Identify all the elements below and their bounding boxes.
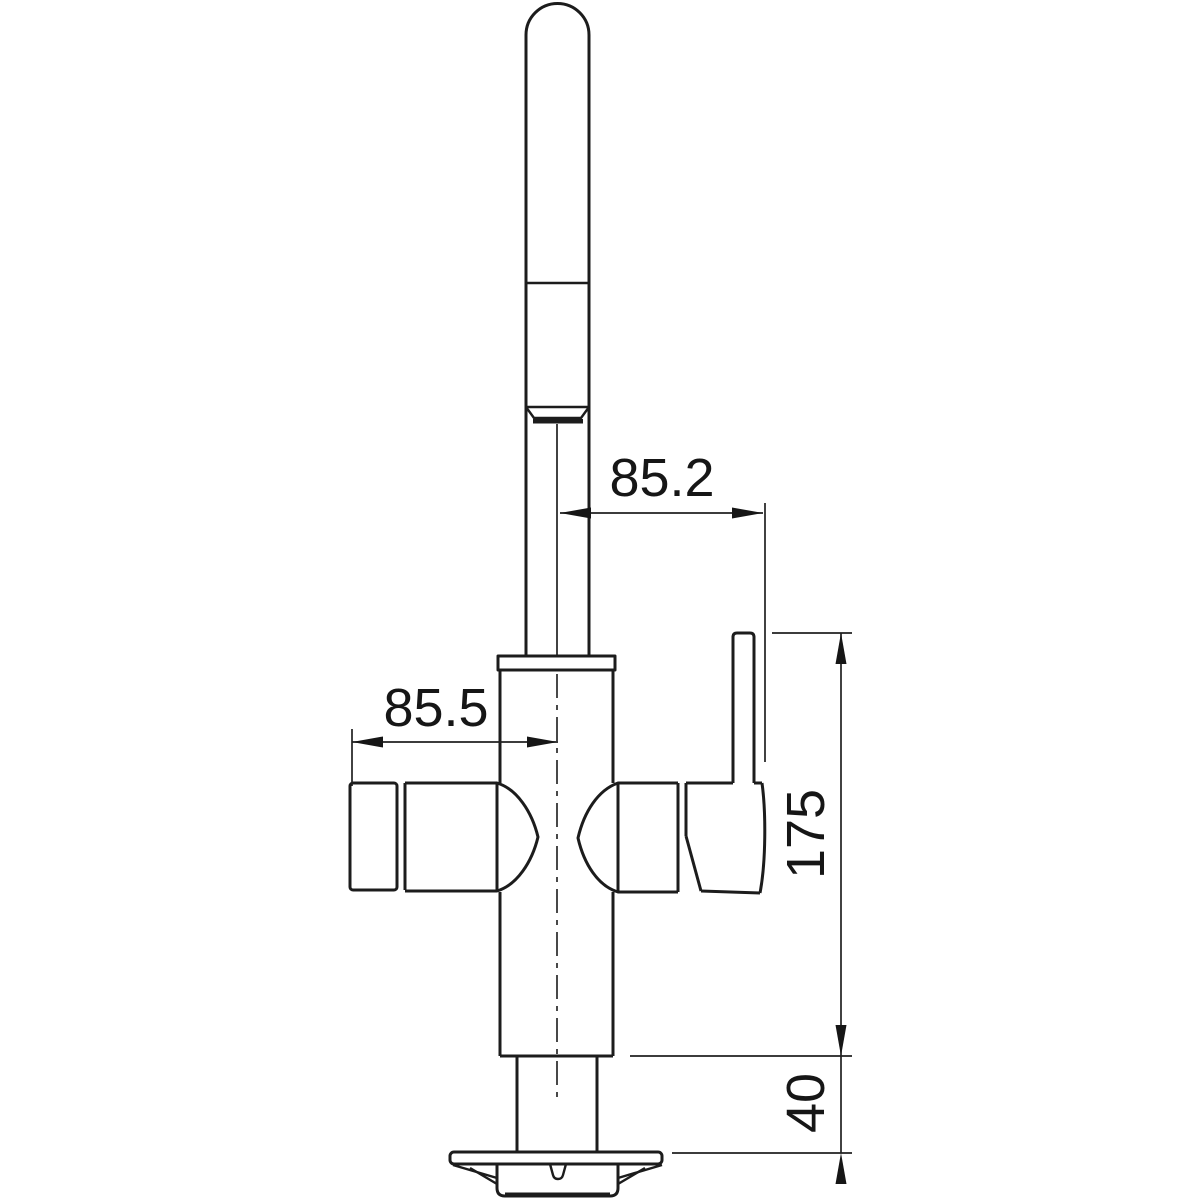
handle-body-bottom — [701, 891, 760, 893]
left-valve — [350, 783, 538, 891]
right-barrel-nose — [578, 783, 618, 892]
left-valve-nose — [497, 783, 538, 891]
body-collar — [498, 656, 615, 670]
dimension-40: 40 — [630, 1056, 852, 1184]
dimension-40-label: 40 — [776, 1073, 836, 1133]
base-mount — [450, 1056, 662, 1196]
base-flange-plate — [450, 1152, 662, 1164]
dimension-85-2-arrow-right — [732, 508, 763, 519]
aerator-chamfer — [526, 407, 589, 418]
dimension-85-5-label: 85.5 — [383, 678, 488, 738]
aerator-ring — [533, 419, 583, 424]
dimension-175: 175 — [772, 633, 852, 1056]
dimension-175-label: 175 — [776, 789, 836, 879]
dimension-85-2-label: 85.2 — [609, 448, 714, 508]
base-box-bottom-thick-edge — [505, 1193, 610, 1197]
handle-pivot-diagonal — [686, 836, 701, 891]
drawing-canvas: 85.2 85.5 175 40 — [0, 0, 1200, 1200]
right-handle-assembly — [578, 633, 765, 893]
left-valve-end-cap — [350, 783, 397, 890]
handle-body-right-edge — [760, 783, 765, 893]
dimension-85-5-arrow-right — [527, 737, 558, 748]
dimension-85-2-arrow-left — [560, 508, 591, 519]
faucet-technical-drawing: 85.2 85.5 175 40 — [0, 0, 1200, 1200]
dimension-40-arrow-outside — [836, 1153, 847, 1184]
spout — [526, 4, 589, 657]
dimension-175-arrow-up — [836, 633, 847, 664]
dimension-85-5-arrow-left — [352, 737, 383, 748]
lever-bar — [733, 633, 754, 783]
dimension-175-arrow-down — [836, 1025, 847, 1056]
dimension-85-5: 85.5 — [352, 678, 558, 786]
